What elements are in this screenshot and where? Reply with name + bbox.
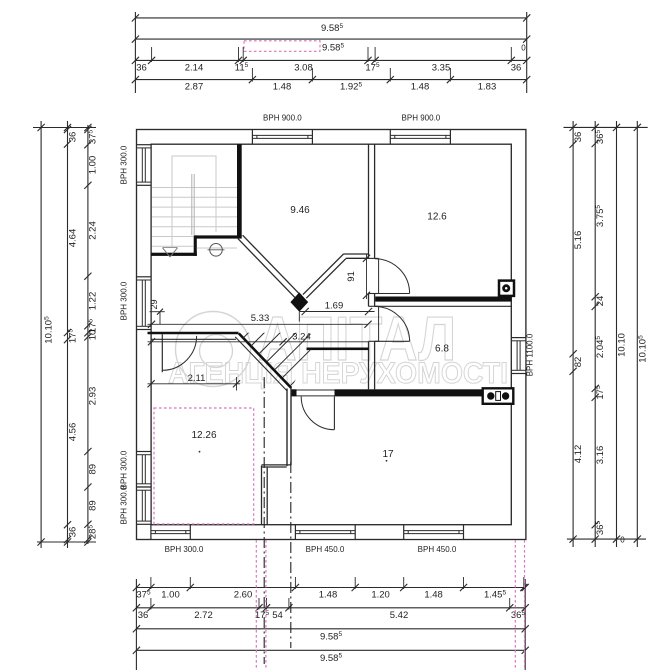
svg-text:1.48: 1.48 — [424, 590, 443, 601]
svg-text:36: 36 — [138, 610, 149, 621]
svg-text:BPH 300.0: BPH 300.0 — [120, 450, 129, 489]
svg-text:2.72: 2.72 — [194, 610, 213, 621]
svg-text:BPH 300.0: BPH 300.0 — [165, 545, 204, 554]
svg-text:BPH 300.0: BPH 300.0 — [120, 281, 129, 320]
svg-text:АГЕНЦІЯ НЕРУХОМОСТІ: АГЕНЦІЯ НЕРУХОМОСТІ — [168, 357, 508, 390]
svg-text:3.16: 3.16 — [595, 446, 606, 465]
svg-text:10: 10 — [88, 330, 99, 341]
svg-text:12.26: 12.26 — [191, 430, 216, 441]
svg-text:2.60: 2.60 — [234, 590, 253, 601]
svg-text:24: 24 — [595, 296, 606, 307]
svg-text:1.20: 1.20 — [371, 590, 390, 601]
svg-text:BPH 450.0: BPH 450.0 — [306, 545, 345, 554]
svg-text:4.64: 4.64 — [68, 229, 79, 248]
svg-text:3.35: 3.35 — [432, 62, 451, 73]
svg-text:1.48: 1.48 — [411, 82, 430, 93]
svg-text:89: 89 — [88, 464, 99, 475]
svg-text:2.24: 2.24 — [88, 221, 99, 240]
svg-text:2.14: 2.14 — [185, 62, 204, 73]
svg-text:BPH 900.0: BPH 900.0 — [263, 114, 302, 123]
svg-text:36: 36 — [573, 132, 584, 143]
svg-text:29: 29 — [149, 299, 159, 309]
svg-text:2.93: 2.93 — [88, 387, 99, 406]
svg-text:0: 0 — [521, 44, 526, 53]
svg-text:91: 91 — [346, 271, 357, 282]
svg-text:10.105: 10.105 — [44, 316, 55, 344]
svg-text:1.48: 1.48 — [273, 82, 292, 93]
svg-text:1.83: 1.83 — [478, 82, 497, 93]
svg-text:1.48: 1.48 — [319, 590, 338, 601]
svg-text:17: 17 — [382, 449, 394, 460]
svg-text:BPH 900.0: BPH 900.0 — [402, 114, 441, 123]
svg-text:4.12: 4.12 — [573, 445, 584, 464]
svg-text:BPH 450.0: BPH 450.0 — [418, 545, 457, 554]
svg-text:89: 89 — [88, 500, 99, 511]
svg-text:5.33: 5.33 — [251, 313, 270, 324]
svg-text:0: 0 — [620, 536, 625, 545]
svg-text:1.22: 1.22 — [88, 292, 99, 311]
svg-text:1.69: 1.69 — [325, 301, 344, 312]
svg-text:12.6: 12.6 — [427, 212, 447, 223]
svg-text:3.24: 3.24 — [292, 332, 311, 343]
svg-text:36: 36 — [68, 527, 79, 538]
svg-text:82: 82 — [573, 357, 584, 368]
svg-text:BPH 300.0: BPH 300.0 — [120, 145, 129, 184]
svg-text:1.00: 1.00 — [161, 590, 180, 601]
svg-text:54: 54 — [272, 610, 283, 621]
svg-text:10.105: 10.105 — [638, 335, 649, 363]
svg-text:5.16: 5.16 — [573, 231, 584, 250]
svg-text:9.46: 9.46 — [290, 205, 310, 216]
svg-text:BPH 1100.0: BPH 1100.0 — [526, 333, 535, 376]
svg-text:10.10: 10.10 — [617, 333, 628, 357]
svg-text:1.00: 1.00 — [88, 156, 99, 175]
svg-text:5.42: 5.42 — [390, 610, 409, 621]
svg-text:4.56: 4.56 — [68, 423, 79, 442]
svg-text:2.11: 2.11 — [188, 373, 206, 384]
svg-text:2.87: 2.87 — [185, 82, 204, 93]
svg-text:36: 36 — [136, 62, 147, 73]
svg-text:36: 36 — [68, 132, 79, 143]
svg-text:6.8: 6.8 — [435, 344, 449, 355]
svg-text:36: 36 — [511, 62, 522, 73]
svg-text:3.08: 3.08 — [294, 62, 313, 73]
svg-text:BPH 300.0: BPH 300.0 — [120, 485, 129, 524]
